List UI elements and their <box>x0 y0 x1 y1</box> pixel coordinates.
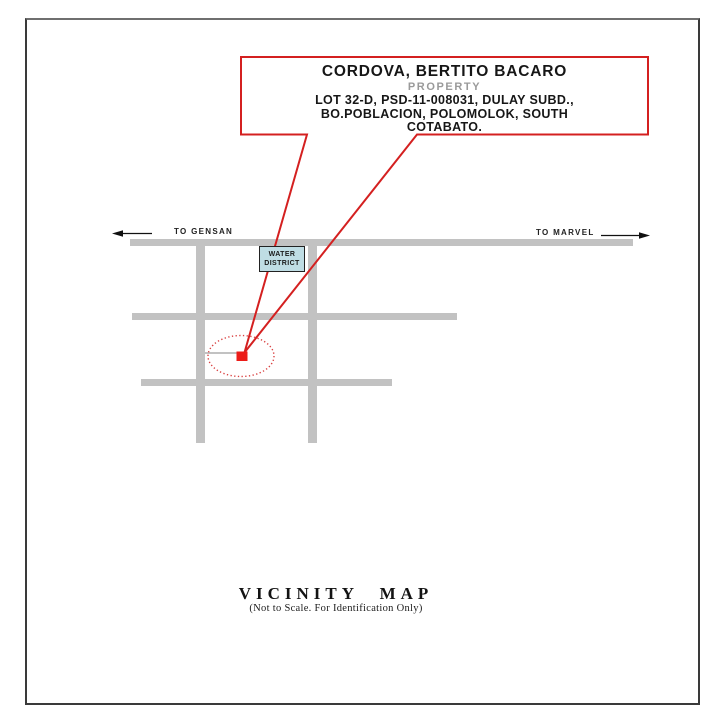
map-title: VICINITY MAP <box>186 584 486 604</box>
horizontal-road-lower <box>141 379 392 386</box>
access-lane-line <box>203 352 237 354</box>
address-line-3: COTABATO. <box>241 121 648 135</box>
horizontal-road-middle <box>132 313 457 320</box>
vicinity-map-sheet: CORDOVA, BERTITO BACARO PROPERTY LOT 32-… <box>0 0 720 720</box>
direction-label-marvel: TO MARVEL <box>536 228 595 237</box>
arrow-to-marvel <box>601 232 650 239</box>
lot-marker-square <box>237 352 248 362</box>
map-note: (Not to Scale. For Identification Only) <box>186 603 486 614</box>
main-highway-road <box>130 239 633 246</box>
property-title-block: CORDOVA, BERTITO BACARO PROPERTY LOT 32-… <box>241 57 648 135</box>
landmark-label-line2: DISTRICT <box>264 259 299 268</box>
address-line-1: LOT 32-D, PSD-11-008031, DULAY SUBD., <box>241 94 648 108</box>
address-line-2: BO.POBLACION, POLOMOLOK, SOUTH <box>241 108 648 122</box>
landmark-label-line1: WATER <box>269 250 296 259</box>
owner-name: CORDOVA, BERTITO BACARO <box>241 62 648 81</box>
vertical-road-left <box>196 240 205 443</box>
water-district-landmark: WATER DISTRICT <box>259 246 305 272</box>
direction-label-gensan: TO GENSAN <box>174 227 233 236</box>
arrow-to-gensan <box>112 230 152 237</box>
